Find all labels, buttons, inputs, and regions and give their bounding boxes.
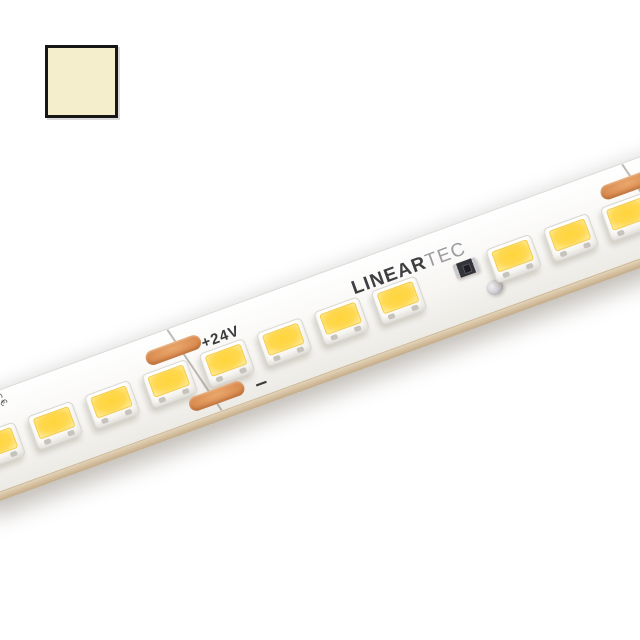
led-contact — [43, 438, 51, 445]
led-contact — [354, 325, 362, 332]
led-contact — [617, 229, 625, 236]
led-contact — [10, 450, 18, 457]
led-contact — [387, 313, 395, 320]
led-contact — [411, 304, 419, 311]
led-contact — [124, 409, 132, 416]
led-contact — [502, 271, 510, 278]
led-contact — [239, 367, 247, 374]
led-contact — [273, 355, 281, 362]
led-contact — [583, 242, 591, 249]
pcb-top-face — [0, 109, 640, 502]
led-contact — [330, 334, 338, 341]
led-contact — [215, 375, 223, 382]
led-contact — [101, 417, 109, 424]
led-strip: C€ LINEARTEC +24V–+24V– — [0, 109, 640, 509]
color-swatch — [45, 45, 118, 118]
led-contact — [526, 263, 534, 270]
product-photo: C€ LINEARTEC +24V–+24V– — [0, 0, 640, 640]
led-contact — [67, 430, 75, 437]
led-contact — [559, 250, 567, 257]
led-contact — [158, 396, 166, 403]
led-contact — [296, 346, 304, 353]
led-contact — [182, 388, 190, 395]
